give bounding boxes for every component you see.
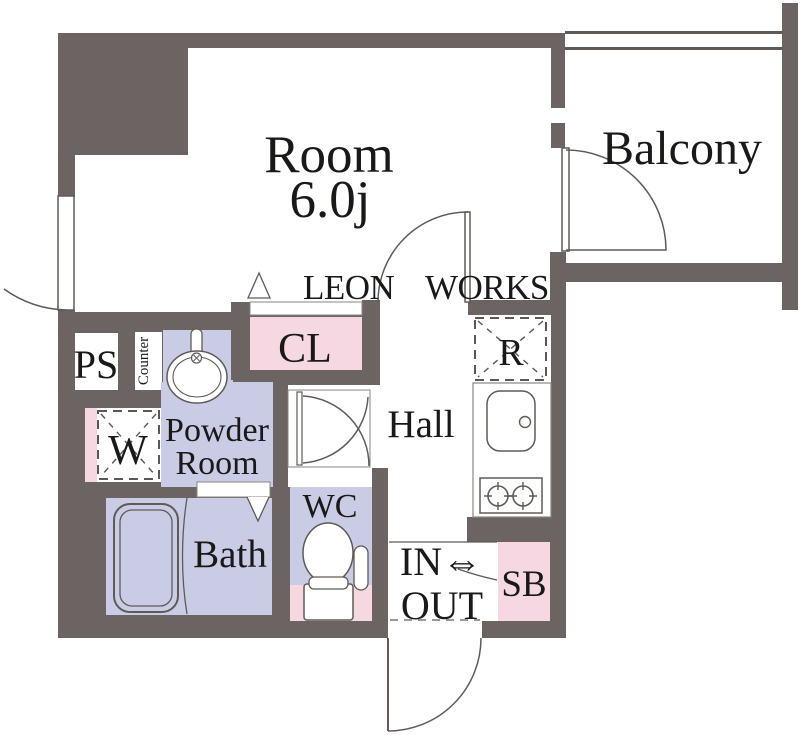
powder-door-leaf: [297, 392, 302, 465]
floor-plan-page: Room 6.0j Balcony CL PS Counter W Powder…: [0, 0, 800, 735]
hall-label: Hall: [387, 403, 454, 446]
closet-label: CL: [278, 326, 332, 372]
bath-label: Bath: [193, 533, 267, 576]
room-size-label: 6.0j: [290, 171, 371, 229]
room-window-leaf: [58, 196, 74, 310]
powder-room-label-line1: Powder: [165, 412, 270, 449]
wc-label: WC: [303, 488, 358, 525]
pipe-space-label: PS: [74, 342, 119, 387]
kitchen-counter-icon: [473, 383, 551, 517]
counter-label: Counter: [136, 337, 152, 385]
stove-icon: [480, 478, 542, 513]
closet-right-pillar: [362, 300, 380, 380]
washer-pink-strip: [85, 408, 97, 482]
wc-doorway: [288, 468, 372, 487]
powder-room-label-line2: Room: [175, 445, 258, 482]
entrance-label-line1: IN⇔: [400, 539, 482, 584]
balcony-railing: [565, 31, 783, 50]
watermark-word1: LEON: [303, 268, 395, 307]
balcony-door-leaf: [562, 148, 569, 251]
floor-plan-canvas: Room 6.0j Balcony CL PS Counter W Powder…: [0, 0, 800, 735]
watermark: LEON WORKS: [303, 268, 549, 307]
wc-right-wall: [372, 468, 388, 621]
washer-label: W: [108, 428, 148, 474]
fridge-label: R: [498, 332, 524, 374]
room-window-arc: [4, 289, 66, 310]
watermark-word2: WORKS: [425, 268, 549, 307]
balcony-label: Balcony: [602, 122, 762, 175]
shoe-box-label: SB: [501, 564, 546, 605]
entrance-label-line2: OUT: [401, 583, 483, 628]
faucet-icon: [520, 417, 531, 428]
closet-left-pillar: [231, 302, 250, 380]
closet-door-triangle: [248, 273, 270, 298]
bath-door-strip: [197, 482, 270, 497]
entrance-door-arc: [388, 638, 481, 731]
